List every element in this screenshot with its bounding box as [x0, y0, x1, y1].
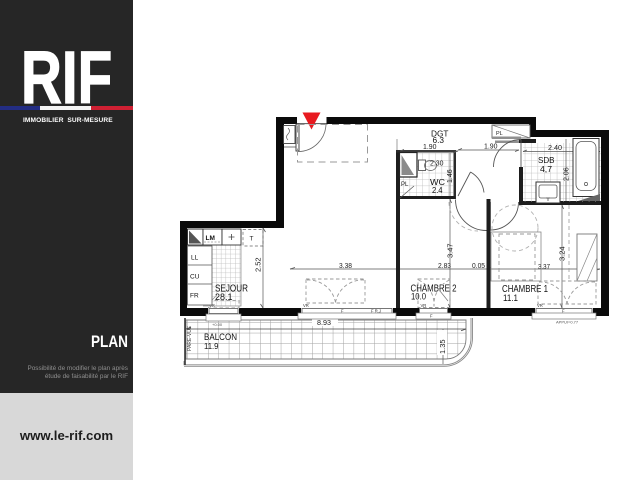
- svg-text:T: T: [250, 236, 254, 243]
- svg-text:F: F: [341, 309, 344, 314]
- svg-text:PL: PL: [401, 182, 409, 188]
- svg-text:1.46: 1.46: [447, 169, 454, 183]
- svg-text:SDB: SDB: [538, 155, 555, 165]
- svg-text:VR: VR: [303, 303, 309, 308]
- svg-text:F R.J: F R.J: [371, 309, 381, 314]
- svg-text:0.05: 0.05: [472, 261, 485, 270]
- svg-text:11.1: 11.1: [503, 293, 518, 304]
- svg-text:1.35: 1.35: [438, 339, 447, 354]
- svg-text:4,7: 4,7: [540, 165, 553, 174]
- svg-text:2.52: 2.52: [254, 257, 263, 272]
- svg-text:2.30: 2.30: [430, 161, 444, 168]
- svg-text:3.37: 3.37: [538, 262, 550, 271]
- svg-text:11.9: 11.9: [204, 341, 219, 351]
- svg-text:10.0: 10.0: [411, 292, 426, 303]
- svg-text:F: F: [562, 309, 565, 314]
- svg-text:CU: CU: [190, 274, 200, 281]
- svg-text:2.40: 2.40: [548, 145, 562, 152]
- svg-text:F: F: [430, 314, 433, 319]
- svg-text:3.47: 3.47: [446, 243, 455, 258]
- svg-text:PL: PL: [496, 131, 503, 137]
- svg-text:APPUI=0.77: APPUI=0.77: [556, 320, 579, 325]
- svg-text:+0.00: +0.00: [212, 322, 223, 327]
- svg-text:3.38: 3.38: [339, 261, 352, 270]
- svg-text:2.06: 2.06: [564, 167, 571, 181]
- svg-text:LM: LM: [206, 235, 215, 242]
- svg-text:FR: FR: [190, 293, 199, 300]
- svg-text:2.4: 2.4: [432, 186, 443, 195]
- svg-text:1.90: 1.90: [423, 144, 437, 151]
- svg-text:2.83: 2.83: [438, 261, 451, 270]
- svg-text:8.93: 8.93: [317, 318, 331, 327]
- svg-text:3.24: 3.24: [558, 246, 567, 261]
- svg-text:28.1: 28.1: [215, 292, 233, 303]
- svg-text:1.90: 1.90: [484, 144, 498, 151]
- svg-text:LL: LL: [191, 255, 199, 262]
